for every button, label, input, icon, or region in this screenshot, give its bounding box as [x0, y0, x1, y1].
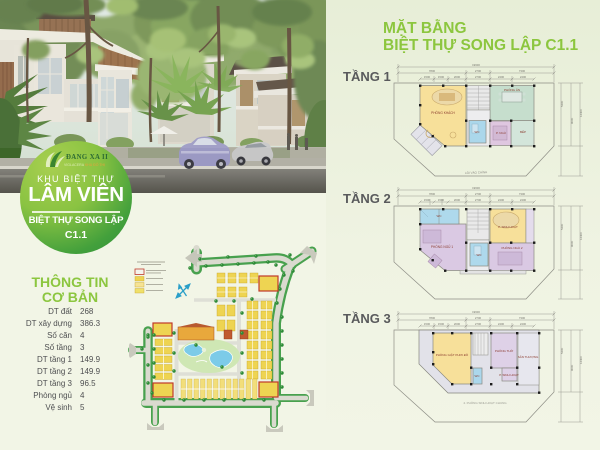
svg-text:2400: 2400 [498, 198, 505, 202]
svg-text:PHÒNG THỜ: PHÒNG THỜ [495, 348, 514, 353]
svg-text:2700: 2700 [475, 69, 482, 73]
svg-text:1500: 1500 [438, 198, 445, 202]
svg-text:14400: 14400 [579, 232, 583, 240]
svg-text:2400: 2400 [498, 75, 505, 79]
svg-text:9000: 9000 [570, 117, 574, 124]
svg-text:14400: 14400 [579, 109, 583, 117]
svg-text:PHÒNG NGỦ 2: PHÒNG NGỦ 2 [501, 245, 522, 250]
svg-text:WC: WC [475, 374, 481, 378]
svg-text:PHÒNG ĂN: PHÒNG ĂN [504, 87, 520, 92]
svg-text:2400: 2400 [520, 75, 527, 79]
svg-text:BẾP: BẾP [520, 129, 526, 134]
svg-text:2000: 2000 [454, 75, 461, 79]
svg-text:7300: 7300 [519, 316, 526, 320]
svg-text:P. SINH HOẠT: P. SINH HOẠT [499, 373, 519, 377]
svg-text:2700: 2700 [475, 198, 482, 202]
svg-text:PHÒNG NGỦ 1: PHÒNG NGỦ 1 [431, 244, 454, 249]
svg-text:1500: 1500 [424, 198, 431, 202]
svg-text:PHÒNG GIẶT PHƠI ĐỒ: PHÒNG GIẶT PHƠI ĐỒ [436, 352, 469, 357]
svg-text:LỐI VÀO CHÍNH: LỐI VÀO CHÍNH [465, 169, 488, 175]
svg-text:2000: 2000 [454, 198, 461, 202]
svg-text:2700: 2700 [475, 192, 482, 196]
svg-text:7800: 7800 [429, 316, 436, 320]
svg-text:SÂN THƯỢNG: SÂN THƯỢNG [518, 354, 539, 359]
svg-text:7300: 7300 [519, 192, 526, 196]
svg-text:2700: 2700 [475, 316, 482, 320]
svg-text:1500: 1500 [424, 75, 431, 79]
svg-text:2700: 2700 [475, 322, 482, 326]
svg-text:19600: 19600 [472, 63, 480, 67]
svg-text:4. PHÒNG SINH HOẠT CHUNG: 4. PHÒNG SINH HOẠT CHUNG [463, 400, 507, 405]
svg-text:1500: 1500 [438, 322, 445, 326]
svg-text:WC: WC [437, 214, 443, 218]
svg-text:5400: 5400 [560, 347, 564, 354]
svg-text:19600: 19600 [472, 310, 480, 314]
svg-text:5400: 5400 [560, 100, 564, 107]
svg-text:1500: 1500 [424, 322, 431, 326]
svg-text:5400: 5400 [560, 223, 564, 230]
svg-text:7800: 7800 [429, 69, 436, 73]
svg-text:P. NGỦ: P. NGỦ [496, 130, 506, 135]
svg-text:7800: 7800 [429, 192, 436, 196]
svg-text:9000: 9000 [570, 364, 574, 371]
svg-text:19600: 19600 [472, 186, 480, 190]
svg-text:2000: 2000 [454, 322, 461, 326]
svg-text:14400: 14400 [579, 356, 583, 364]
svg-text:7300: 7300 [519, 69, 526, 73]
svg-text:2400: 2400 [520, 198, 527, 202]
svg-text:WC: WC [475, 130, 481, 134]
svg-text:WC: WC [477, 253, 483, 257]
svg-text:2400: 2400 [498, 322, 505, 326]
svg-text:2400: 2400 [520, 322, 527, 326]
svg-text:1500: 1500 [438, 75, 445, 79]
svg-text:9000: 9000 [570, 240, 574, 247]
svg-text:PHÒNG KHÁCH: PHÒNG KHÁCH [431, 110, 455, 115]
svg-text:2700: 2700 [475, 75, 482, 79]
svg-text:P. SINH HOẠT: P. SINH HOẠT [498, 225, 518, 229]
